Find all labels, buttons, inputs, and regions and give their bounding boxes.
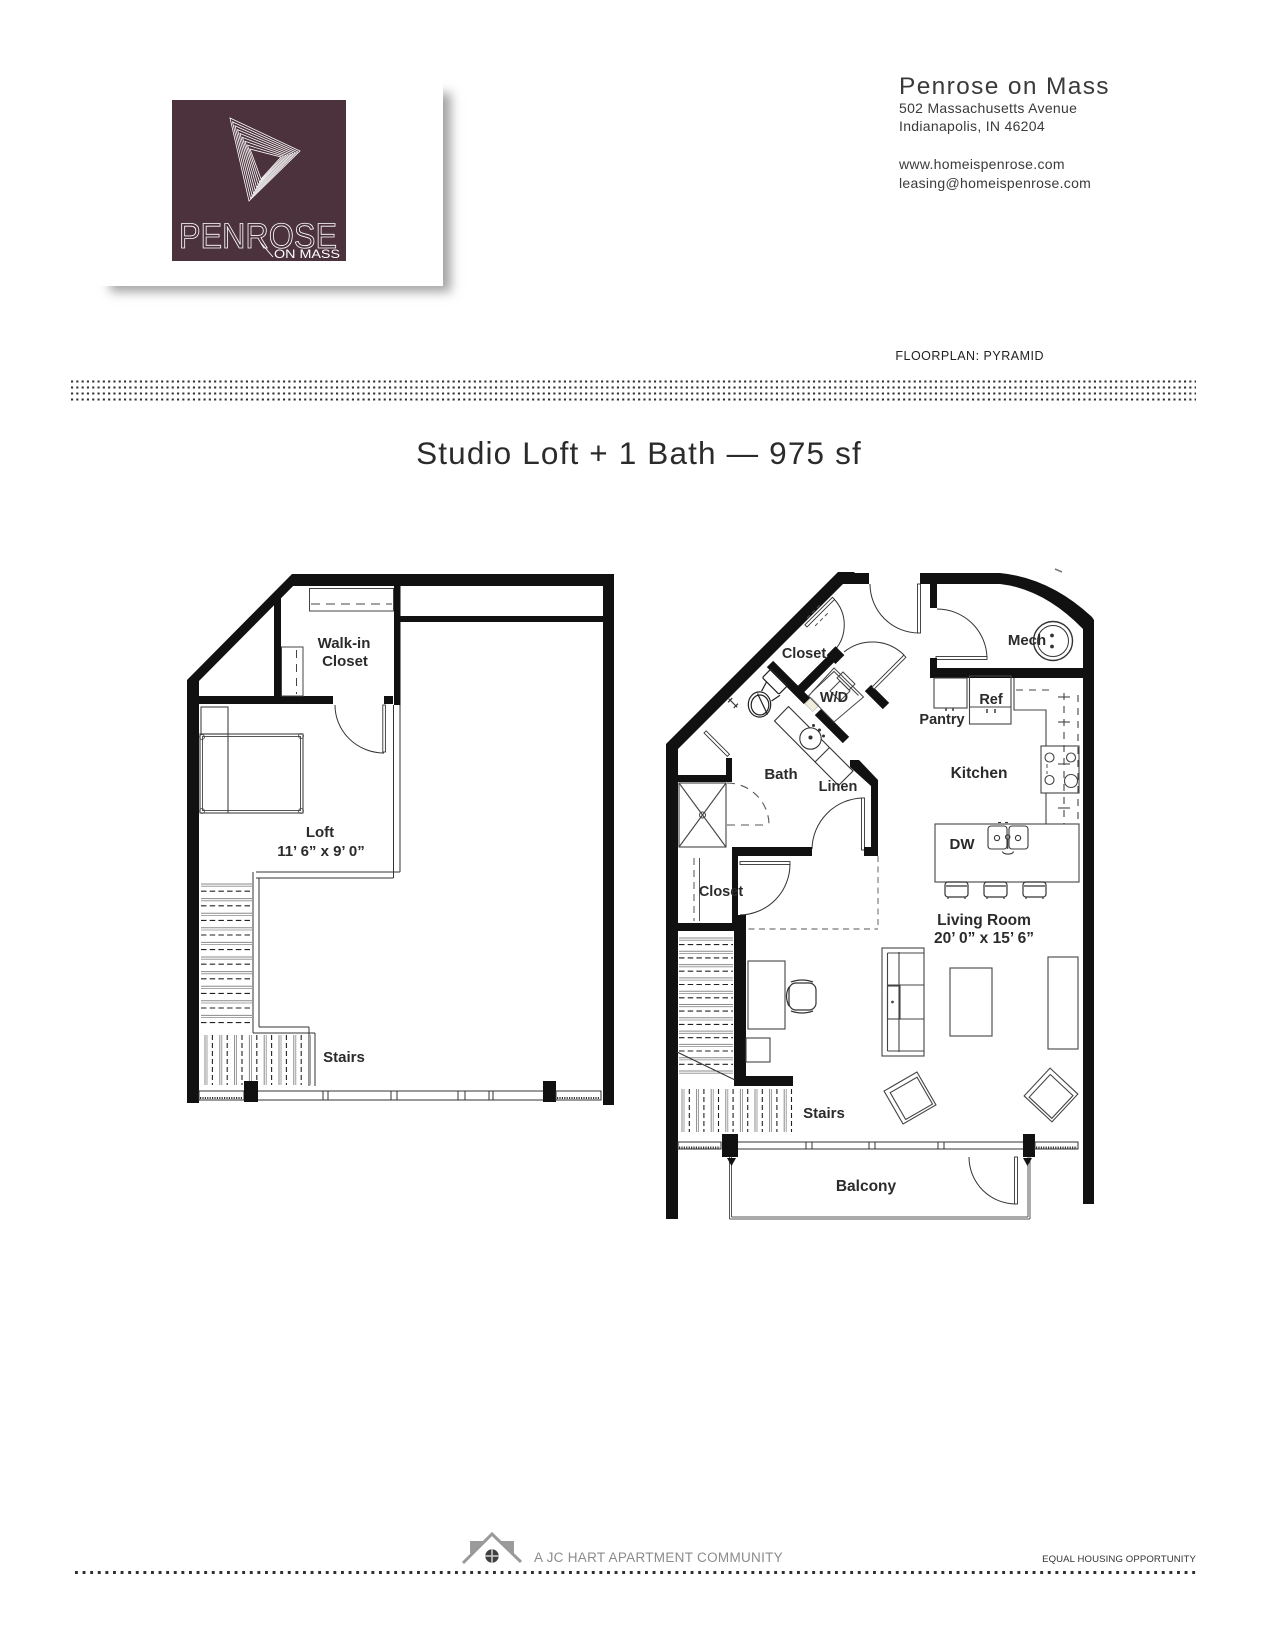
svg-text:DW: DW [950,836,976,853]
svg-text:A JC HART APARTMENT COMMUNITY: A JC HART APARTMENT COMMUNITY [534,1550,783,1565]
svg-text:Indianapolis, IN 46204: Indianapolis, IN 46204 [899,118,1045,134]
svg-text:11’ 6” x 9’ 0”: 11’ 6” x 9’ 0” [277,843,365,860]
svg-text:Loft: Loft [306,824,334,841]
svg-text:Closet: Closet [699,884,743,900]
svg-text:Pantry: Pantry [919,712,964,728]
svg-text:Bath: Bath [764,766,797,783]
svg-text:EQUAL HOUSING OPPORTUNITY: EQUAL HOUSING OPPORTUNITY [1042,1554,1196,1565]
svg-text:502 Massachusetts Avenue: 502 Massachusetts Avenue [899,100,1077,116]
svg-text:Closet: Closet [782,646,826,662]
svg-text:Ref: Ref [979,692,1003,708]
svg-text:leasing@homeispenrose.com: leasing@homeispenrose.com [899,175,1091,191]
svg-text:Kitchen: Kitchen [951,765,1008,782]
svg-text:20’ 0” x 15’ 6”: 20’ 0” x 15’ 6” [934,930,1034,947]
svg-text:Stairs: Stairs [803,1105,845,1122]
svg-text:Walk-in: Walk-in [318,635,371,652]
svg-text:Linen: Linen [819,779,858,795]
svg-text:Studio Loft + 1 Bath — 975 sf: Studio Loft + 1 Bath — 975 sf [416,435,862,471]
svg-text:Penrose on Mass: Penrose on Mass [899,73,1110,100]
svg-text:Living Room: Living Room [937,912,1031,929]
svg-text:W/D: W/D [820,690,848,706]
svg-text:Balcony: Balcony [836,1178,897,1195]
svg-text:ON MASS: ON MASS [274,247,340,261]
svg-text:www.homeispenrose.com: www.homeispenrose.com [898,156,1065,172]
svg-text:Closet: Closet [322,653,368,670]
svg-text:Stairs: Stairs [323,1049,365,1066]
svg-text:FLOORPLAN: PYRAMID: FLOORPLAN: PYRAMID [895,349,1044,363]
svg-text:Mech: Mech [1008,632,1046,649]
